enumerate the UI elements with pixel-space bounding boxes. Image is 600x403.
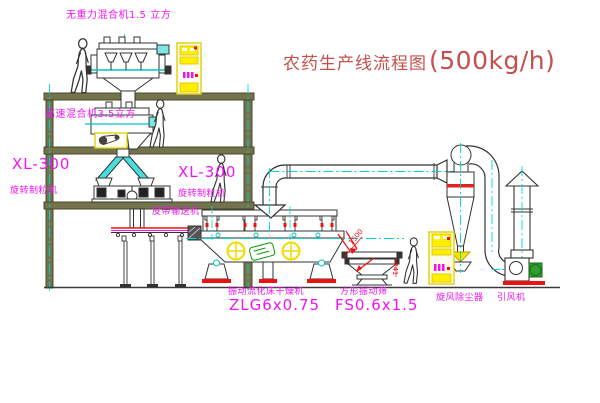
- dim-sieve-height: 741: [391, 262, 398, 275]
- label-belt-conveyor: 皮带输送机: [152, 208, 200, 217]
- indicator-light-icon: [447, 237, 450, 240]
- label-granulator-model-left: XL-300: [12, 157, 70, 172]
- dryer-legs: [205, 260, 333, 279]
- label-high-speed-mixer: 高速混合机3.5立方: [45, 110, 136, 120]
- title-chinese: 农药生产线流程图: [283, 49, 427, 74]
- mixer-drive-box: [95, 133, 127, 148]
- label-granulator-name-mid: 旋转制粒机: [178, 190, 226, 199]
- person-icon: [71, 39, 88, 93]
- control-cabinet-top: [177, 43, 201, 94]
- outlet-duct: [466, 146, 510, 276]
- title-capacity: (500kg/h): [429, 46, 555, 75]
- discharge-pipe: [130, 209, 144, 228]
- label-fan: 引风机: [497, 294, 526, 303]
- control-cabinet-ground: [429, 232, 454, 284]
- label-granulator-model-mid: XL-300: [178, 165, 236, 180]
- label-granulator-name-left: 旋转制粒机: [10, 187, 58, 196]
- process-flow-diagram: 农药生产线流程图 (500kg/h) 无重力混合机1.5 立方 高速混合机3.5…: [0, 0, 600, 403]
- label-sieve-model: FS0.6x1.5: [335, 298, 418, 313]
- belt-conveyor: [111, 228, 199, 287]
- mixer-paddles: [105, 53, 147, 70]
- person-icon: [404, 238, 419, 283]
- label-cyclone: 旋风除尘器: [436, 294, 484, 303]
- label-dryer-model: ZLG6x0.75: [229, 298, 320, 313]
- y-chute: [96, 157, 150, 180]
- motor-icon: [529, 263, 542, 277]
- indicator-light-icon: [195, 74, 198, 77]
- indicator-light-icon: [447, 267, 450, 270]
- induced-draft-fan: [503, 258, 545, 285]
- page-title: 农药生产线流程图 (500kg/h): [283, 46, 555, 75]
- granulators: [92, 178, 172, 202]
- label-gravity-free-mixer: 无重力混合机1.5 立方: [66, 11, 171, 21]
- indicator-light-icon: [194, 47, 197, 50]
